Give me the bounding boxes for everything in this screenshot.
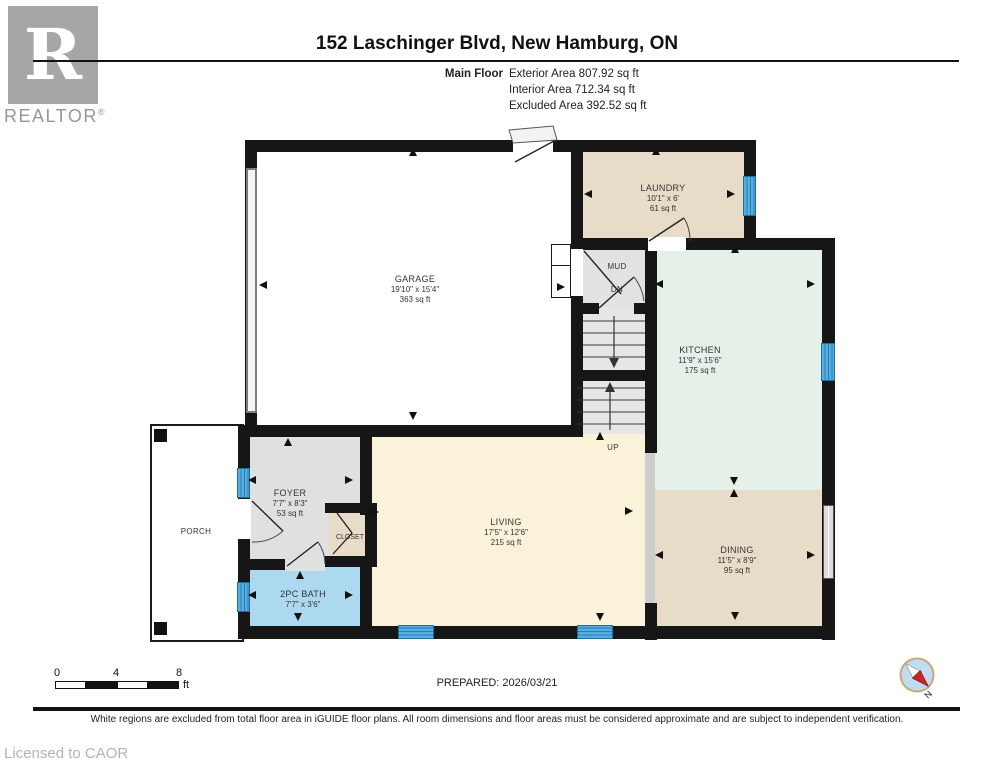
room-name: KITCHEN	[630, 345, 770, 356]
door-opening	[285, 558, 325, 571]
dimension-arrow	[284, 438, 292, 446]
label-bath: 2PC BATH 7'7" x 3'6"	[243, 589, 363, 610]
dimension-arrow	[730, 477, 738, 485]
garage-door	[246, 168, 257, 413]
wall	[238, 626, 835, 639]
realtor-logo-text: REALTOR	[4, 106, 98, 126]
room-dims: 19'10" x 15'4"	[330, 285, 500, 295]
label-kitchen: KITCHEN 11'9" x 15'6" 175 sq ft	[630, 345, 770, 376]
wall	[245, 425, 583, 437]
title-rule	[33, 60, 959, 62]
dimension-arrow	[730, 489, 738, 497]
label-garage: GARAGE 19'10" x 15'4" 363 sq ft	[330, 274, 500, 305]
room-name: LAUNDRY	[593, 183, 733, 194]
page-title: 152 Laschinger Blvd, New Hamburg, ON	[0, 33, 994, 55]
dimension-arrow	[625, 507, 633, 515]
room-name: FOYER	[230, 488, 350, 499]
room-name: DINING	[667, 545, 807, 556]
stairs-up-arrow-marker	[596, 432, 604, 440]
door-opening	[513, 139, 553, 153]
door-opening	[571, 249, 583, 296]
dimension-arrow	[807, 280, 815, 288]
registered-mark: ®	[98, 107, 106, 117]
dimension-arrow	[248, 476, 256, 484]
wall	[571, 140, 756, 152]
room-area: 175 sq ft	[630, 366, 770, 376]
floorplan-page: R REALTOR® 152 Laschinger Blvd, New Hamb…	[0, 0, 994, 768]
dimension-arrow	[731, 245, 739, 253]
room-dims: 7'7" x 3'6"	[243, 600, 363, 610]
window	[743, 176, 756, 216]
window	[577, 625, 613, 639]
dimension-arrow	[807, 551, 815, 559]
dimension-arrow	[596, 613, 604, 621]
dimension-arrow	[296, 571, 304, 579]
room-mud	[577, 244, 651, 309]
realtor-logo-letter: R	[24, 20, 82, 90]
excluded-area: Excluded Area 392.52 sq ft	[509, 100, 769, 112]
wall	[325, 556, 377, 567]
room-dims: 11'5" x 8'9"	[667, 556, 807, 566]
prepared-date: PREPARED: 2026/03/21	[0, 677, 994, 689]
room-area: 53 sq ft	[230, 509, 350, 519]
label-porch: PORCH	[156, 527, 236, 536]
license-text: Licensed to CAOR	[4, 745, 128, 762]
wall	[634, 303, 657, 314]
dimension-arrow	[584, 190, 592, 198]
room-name: GARAGE	[330, 274, 500, 285]
room-dims: 17'5" x 12'6"	[436, 528, 576, 538]
dimension-arrow	[409, 148, 417, 156]
label-mud: MUD	[587, 262, 647, 271]
label-closet: CLOSET	[329, 534, 371, 542]
door-swing-overlay: N	[0, 0, 994, 768]
realtor-logo: R	[8, 6, 98, 104]
dimension-arrow	[655, 551, 663, 559]
floor-label: Main Floor	[417, 68, 503, 80]
realtor-logo-wordmark: REALTOR®	[4, 106, 106, 127]
stairs-up	[577, 374, 647, 434]
dimension-arrow	[371, 508, 379, 516]
dimension-arrow	[259, 281, 267, 289]
label-foyer: FOYER 7'7" x 8'3" 53 sq ft	[230, 488, 350, 519]
window	[398, 625, 434, 639]
door-opening	[648, 237, 686, 251]
porch-post	[154, 429, 167, 442]
porch-post	[154, 622, 167, 635]
disclaimer-text: White regions are excluded from total fl…	[0, 714, 994, 725]
label-dining: DINING 11'5" x 8'9" 95 sq ft	[667, 545, 807, 576]
room-dims: 10'1" x 6'	[593, 194, 733, 204]
wall	[360, 425, 372, 515]
wall	[571, 303, 599, 314]
room-dims: 11'9" x 15'6"	[630, 356, 770, 366]
dimension-arrow	[655, 280, 663, 288]
footer-rule	[33, 707, 960, 711]
dimension-arrow	[345, 476, 353, 484]
interior-area: Interior Area 712.34 sq ft	[509, 84, 769, 96]
dimension-arrow	[652, 147, 660, 155]
room-name: LIVING	[436, 517, 576, 528]
wall	[571, 238, 835, 250]
compass-north-label: N	[922, 689, 934, 701]
dimension-arrow	[409, 412, 417, 420]
dimension-arrow	[294, 613, 302, 621]
label-up: UP	[593, 443, 633, 452]
room-dims: 7'7" x 8'3"	[230, 499, 350, 509]
label-laundry: LAUNDRY 10'1" x 6' 61 sq ft	[593, 183, 733, 214]
label-dn: DN	[597, 285, 637, 294]
wall	[822, 238, 835, 640]
room-area: 61 sq ft	[593, 204, 733, 214]
dimension-arrow	[731, 612, 739, 620]
label-living: LIVING 17'5" x 12'6" 215 sq ft	[436, 517, 576, 548]
room-area: 363 sq ft	[330, 295, 500, 305]
window	[821, 343, 835, 381]
sliding-door	[823, 505, 834, 579]
cased-opening	[645, 453, 655, 603]
dimension-arrow	[557, 283, 565, 291]
room-name: 2PC BATH	[243, 589, 363, 600]
room-area: 95 sq ft	[667, 566, 807, 576]
room-area: 215 sq ft	[436, 538, 576, 548]
wall	[238, 559, 285, 570]
exterior-area: Exterior Area 807.92 sq ft	[509, 68, 769, 80]
